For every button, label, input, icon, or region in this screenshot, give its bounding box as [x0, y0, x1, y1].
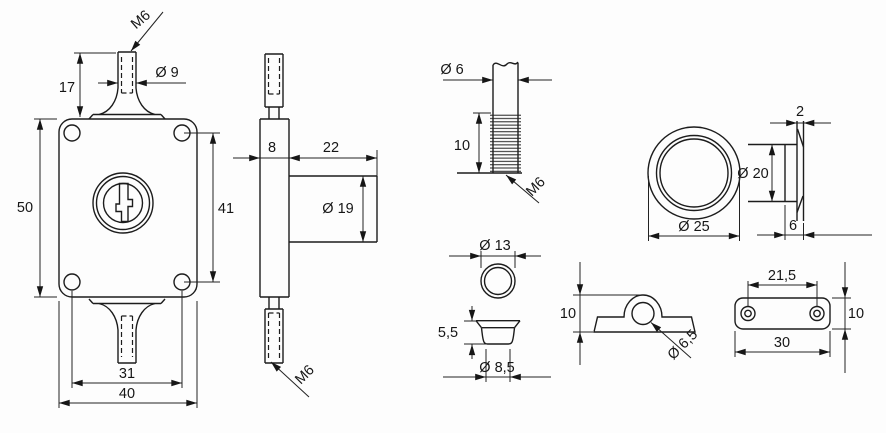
dim-label-cylinder-length: 22	[323, 140, 339, 156]
bottom-post	[89, 299, 165, 363]
dim-label-ferrule-body-diameter: Ø 8,5	[479, 360, 514, 376]
dim-label-thread-bottom: M6	[292, 362, 318, 388]
view-lock-front: M6 Ø 9 17 50 41 31 40	[17, 7, 234, 408]
dim-label-cylinder-diameter: Ø 19	[322, 201, 353, 217]
corner-hole	[64, 274, 80, 290]
dim-label-body-width: 40	[119, 386, 135, 402]
dim-label-rod-thread: M6	[523, 174, 549, 200]
view-lock-side: 8 22 Ø 19 M6	[233, 54, 377, 397]
dim-label-post-height: 17	[59, 80, 75, 96]
view-plate: 21,5 30 10	[735, 262, 864, 373]
ferrule-top-outer	[481, 264, 515, 298]
dim-label-plate-width: 10	[848, 306, 864, 322]
dim-label-ring-inner-diameter: Ø 20	[737, 166, 768, 182]
dim-label-flange-diameter: Ø 13	[479, 238, 510, 254]
dim-label-body-thickness: 8	[268, 140, 276, 156]
top-post	[89, 52, 165, 119]
technical-drawing: M6 Ø 9 17 50 41 31 40	[0, 0, 886, 433]
dim-label-ring-depth: 6	[789, 218, 797, 234]
rod-profile	[457, 62, 522, 173]
dim-label-thread-top: M6	[128, 7, 154, 32]
dim-label-rim-thickness: 2	[796, 104, 804, 120]
dim-label-ferrule-height: 5,5	[438, 325, 458, 341]
view-saddle-bracket: 10 Ø 6,5	[560, 262, 701, 365]
ferrule-side	[476, 321, 520, 344]
dim-label-thread-length: 10	[454, 138, 470, 154]
plate-outline	[735, 298, 830, 329]
ring-front	[648, 127, 740, 219]
dim-label-saddle-height: 10	[560, 306, 576, 322]
saddle-profile	[594, 295, 695, 332]
dim-label-rod-diameter: Ø 6	[440, 62, 463, 78]
saddle-hole	[632, 303, 654, 325]
keyhole	[93, 173, 153, 233]
corner-hole	[64, 125, 80, 141]
view-ferrule: Ø 13 5,5 Ø 8,5	[438, 238, 551, 382]
side-profile	[260, 54, 377, 363]
ferrule-top-inner	[485, 268, 512, 295]
plate-hole	[741, 307, 755, 321]
dim-label-post-diameter: Ø 9	[155, 65, 178, 81]
thread-hatching	[490, 114, 521, 172]
plate-hole	[810, 307, 824, 321]
drawing-canvas: M6 Ø 9 17 50 41 31 40	[0, 0, 886, 433]
dim-label-body-height: 50	[17, 200, 33, 216]
plate-hole-inner	[814, 310, 820, 316]
dim-label-plate-hole-spacing: 21,5	[768, 268, 796, 284]
dim-label-ring-outer-diameter: Ø 25	[678, 219, 709, 235]
plate-hole-inner	[745, 310, 751, 316]
dim-label-hole-spacing-horizontal: 31	[119, 366, 135, 382]
dim-label-plate-length: 30	[774, 335, 790, 351]
view-ring: 2 Ø 20 Ø 25 6	[648, 104, 872, 241]
dim-label-hole-spacing-vertical: 41	[218, 201, 234, 217]
view-threaded-rod: Ø 6 10 M6	[440, 62, 552, 203]
